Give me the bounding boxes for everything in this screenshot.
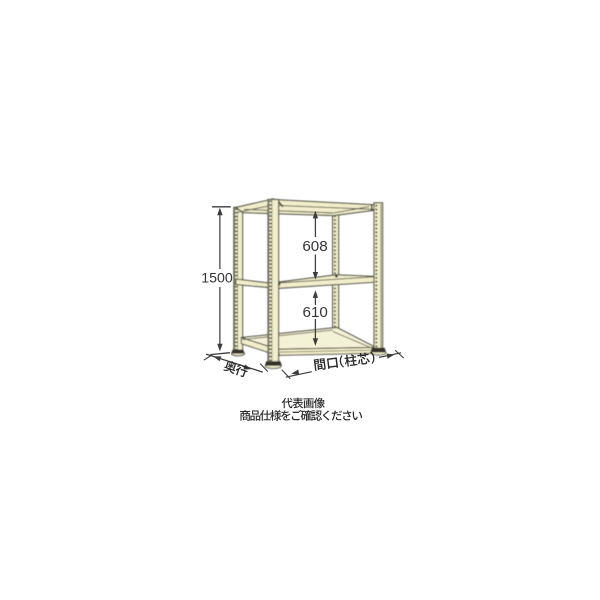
svg-text:610: 610	[303, 304, 328, 321]
svg-text:608: 608	[302, 238, 327, 255]
svg-text:1500: 1500	[201, 270, 233, 286]
